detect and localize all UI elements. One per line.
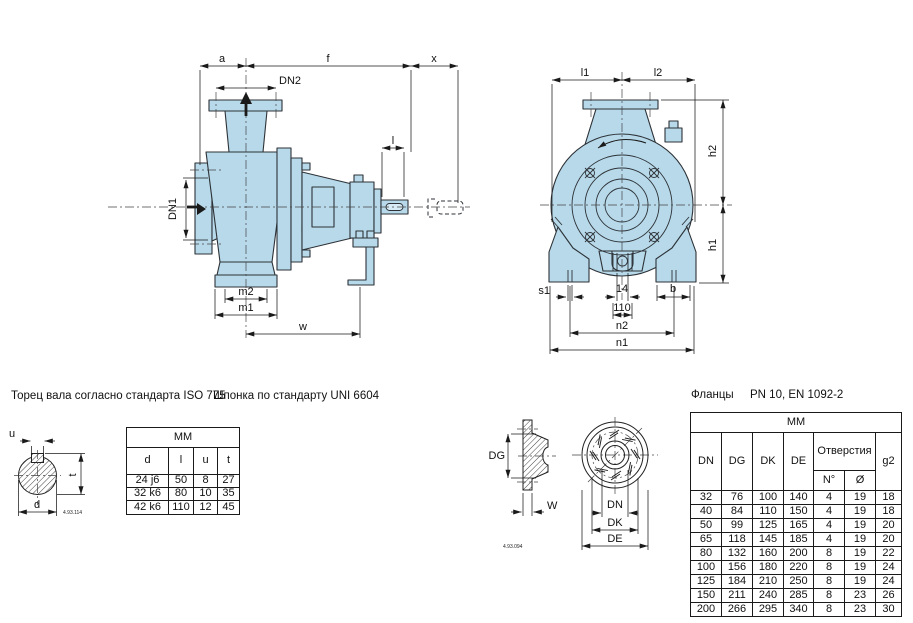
table-row: 42 k6 110 12 45	[127, 501, 240, 515]
cell: 35	[218, 488, 240, 501]
cell: 8	[814, 575, 845, 589]
flange-section	[523, 420, 548, 490]
cell: 200	[691, 603, 722, 617]
col-header-dn: DN	[691, 433, 722, 491]
col-header-u: u	[194, 448, 218, 475]
flange-section-title: Фланцы	[691, 389, 734, 401]
cell: 99	[722, 519, 753, 533]
cell: 84	[722, 505, 753, 519]
dim-label-dg: DG	[489, 450, 506, 462]
cell: 10	[194, 488, 218, 501]
dim-label-w-flange: W	[547, 500, 558, 512]
table-row: 32 76 100 140 4 19 18	[691, 491, 902, 505]
dim-label-dn1: DN1	[167, 198, 179, 220]
table-row: 200 266 295 340 8 23 30	[691, 603, 902, 617]
shaft-dimensions-table: MM d l u t 24 j6 50 8 27 32 k6 80 10 35 …	[126, 427, 240, 515]
cell: 266	[722, 603, 753, 617]
dim-label-dn2: DN2	[279, 75, 301, 87]
unit-header: MM	[691, 413, 902, 433]
cell: 100	[753, 491, 784, 505]
cell: 210	[753, 575, 784, 589]
bearing-housing	[350, 182, 374, 238]
table-row: 50 99 125 165 4 19 20	[691, 519, 902, 533]
table-row: 150 211 240 285 8 23 26	[691, 589, 902, 603]
shaft-standard-note: Торец вала согласно стандарта ISO 775	[11, 390, 226, 402]
col-header-de: DE	[784, 433, 814, 491]
cell: 8	[814, 603, 845, 617]
dim-label-t: t	[67, 473, 79, 476]
cell: 145	[753, 533, 784, 547]
cell: 180	[753, 561, 784, 575]
cell: 150	[784, 505, 814, 519]
cell: 24 j6	[127, 475, 169, 488]
table-row: 40 84 110 150 4 19 18	[691, 505, 902, 519]
dim-label-de: DE	[607, 533, 622, 545]
flange-standard-subtitle: PN 10, EN 1092-2	[750, 389, 843, 401]
cell: 18	[876, 505, 902, 519]
cell: 132	[722, 547, 753, 561]
pump-side-body	[195, 100, 408, 287]
cell: 150	[691, 589, 722, 603]
flange-dimensions-table: MM DN DG DK DE Отверстия g2 N° Ø 32 76 1…	[690, 412, 902, 617]
col-header-dk: DK	[753, 433, 784, 491]
cell: 240	[753, 589, 784, 603]
cell: 19	[845, 575, 876, 589]
cell: 110	[753, 505, 784, 519]
cell: 4	[814, 491, 845, 505]
cell: 125	[691, 575, 722, 589]
cell: 76	[722, 491, 753, 505]
cell: 20	[876, 519, 902, 533]
cell: 340	[784, 603, 814, 617]
table-row: 24 j6 50 8 27	[127, 475, 240, 488]
cell: 125	[753, 519, 784, 533]
cell: 42 k6	[127, 501, 169, 515]
cell: 160	[753, 547, 784, 561]
cell: 18	[876, 491, 902, 505]
dim-label-l: l	[392, 135, 394, 147]
dim-label-110: 110	[613, 302, 631, 314]
drawing-code-flange: 4.93.094	[503, 544, 523, 550]
dim-label-w: w	[298, 321, 307, 333]
cell: 32 k6	[127, 488, 169, 501]
col-header-holes-count: N°	[814, 471, 845, 491]
cell: 8	[814, 547, 845, 561]
cell: 27	[218, 475, 240, 488]
cell: 100	[691, 561, 722, 575]
cell: 140	[784, 491, 814, 505]
dim-label-dk: DK	[607, 517, 623, 529]
col-header-l: l	[169, 448, 194, 475]
flange-drawing: DG W DN DK DE 4.93.094	[489, 417, 659, 550]
dim-label-n2: n2	[616, 320, 628, 332]
col-header-t: t	[218, 448, 240, 475]
cell: 24	[876, 561, 902, 575]
cell: 12	[194, 501, 218, 515]
dim-label-l2: l2	[654, 67, 663, 79]
dim-label-b: b	[670, 283, 676, 295]
table-row: 125 184 210 250 8 19 24	[691, 575, 902, 589]
table-row: 65 118 145 185 4 19 20	[691, 533, 902, 547]
dim-label-m2: m2	[238, 286, 253, 298]
col-header-holes-dia: Ø	[845, 471, 876, 491]
cell: 4	[814, 533, 845, 547]
shaft-end-drawing: u t d 4.93.114	[9, 428, 85, 516]
cell: 118	[722, 533, 753, 547]
cell: 80	[691, 547, 722, 561]
dim-label-f: f	[326, 53, 330, 65]
drawing-code-shaft: 4.93.114	[63, 510, 82, 516]
cell: 211	[722, 589, 753, 603]
dim-label-m1: m1	[238, 302, 253, 314]
cell: 20	[876, 533, 902, 547]
cell: 250	[784, 575, 814, 589]
bearing-bracket	[302, 172, 352, 250]
dim-label-l1: l1	[581, 67, 590, 79]
cell: 40	[691, 505, 722, 519]
cell: 285	[784, 589, 814, 603]
col-header-dg: DG	[722, 433, 753, 491]
pump-front-view: l1 l2 h2 h1 s1 14 110 b n2 n1	[538, 67, 732, 354]
cell: 8	[814, 561, 845, 575]
table-row: 80 132 160 200 8 19 22	[691, 547, 902, 561]
support-bracket	[348, 247, 374, 285]
cell: 24	[876, 575, 902, 589]
cell: 19	[845, 561, 876, 575]
cell: 185	[784, 533, 814, 547]
cell: 80	[169, 488, 194, 501]
cell: 19	[845, 491, 876, 505]
cell: 23	[845, 603, 876, 617]
cell: 50	[691, 519, 722, 533]
cell: 22	[876, 547, 902, 561]
cell: 19	[845, 533, 876, 547]
pump-side-view: a f x DN2 DN1 l m2 m1 w	[108, 53, 470, 338]
catalog-page: { "labels": { "a":"a","f":"f","x":"x","d…	[0, 0, 913, 623]
unit-header: MM	[127, 428, 240, 448]
cell: 220	[784, 561, 814, 575]
table-row: 100 156 180 220 8 19 24	[691, 561, 902, 575]
table-row: 32 k6 80 10 35	[127, 488, 240, 501]
dim-label-dn: DN	[607, 499, 623, 511]
cell: 19	[845, 505, 876, 519]
cell: 156	[722, 561, 753, 575]
dim-label-x: x	[431, 53, 437, 65]
cell: 4	[814, 519, 845, 533]
dim-label-a: a	[219, 53, 226, 65]
cell: 184	[722, 575, 753, 589]
key-standard-note: Шпонка по стандарту UNI 6604	[213, 390, 379, 402]
cell: 26	[876, 589, 902, 603]
dim-label-h2: h2	[707, 145, 719, 157]
dim-label-s1: s1	[538, 285, 550, 297]
cell: 110	[169, 501, 194, 515]
dim-label-14: 14	[616, 283, 628, 295]
cell: 200	[784, 547, 814, 561]
cell: 8	[814, 589, 845, 603]
cell: 295	[753, 603, 784, 617]
cell: 65	[691, 533, 722, 547]
cell: 8	[194, 475, 218, 488]
col-header-d: d	[127, 448, 169, 475]
cell: 30	[876, 603, 902, 617]
cell: 19	[845, 519, 876, 533]
cell: 50	[169, 475, 194, 488]
cell: 165	[784, 519, 814, 533]
col-header-g2: g2	[876, 433, 902, 491]
col-header-holes: Отверстия	[814, 433, 876, 471]
dim-label-n1: n1	[616, 337, 628, 349]
cell: 45	[218, 501, 240, 515]
cell: 4	[814, 505, 845, 519]
dim-label-u: u	[9, 428, 15, 440]
dim-label-d: d	[34, 499, 40, 511]
cell: 32	[691, 491, 722, 505]
cell: 19	[845, 547, 876, 561]
dim-label-h1: h1	[707, 239, 719, 251]
discharge-flange-front	[583, 100, 658, 109]
cell: 23	[845, 589, 876, 603]
